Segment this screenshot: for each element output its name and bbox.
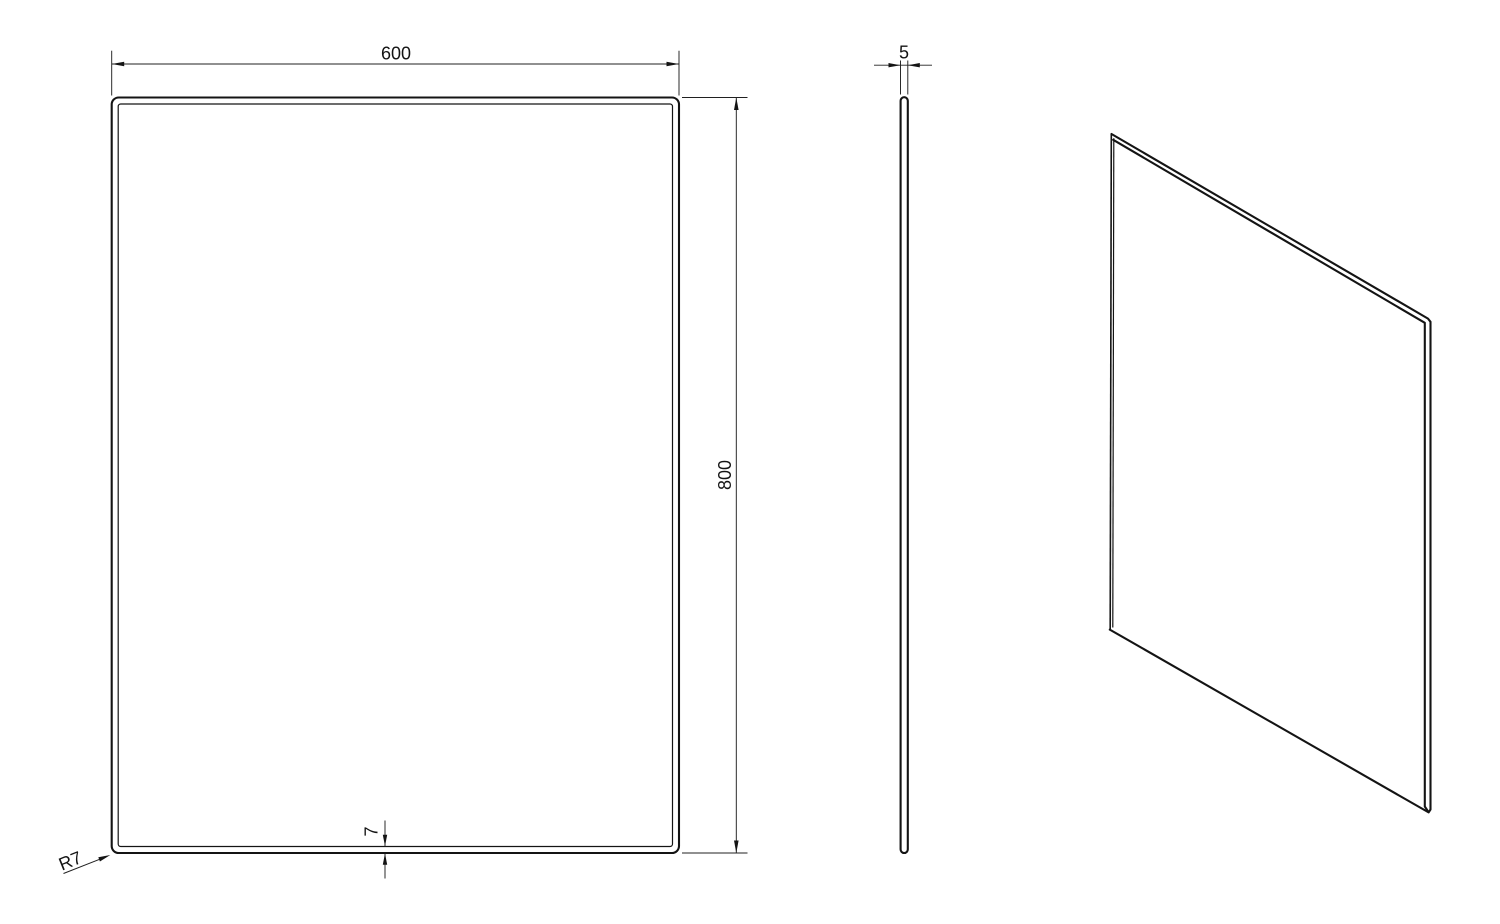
iso-outer-silhouette	[1110, 134, 1431, 812]
dimension-height: 800	[682, 98, 748, 854]
radius-callout: R7	[56, 847, 110, 874]
arrowhead-down	[383, 835, 387, 847]
iso-left-edge	[1110, 134, 1111, 629]
side-profile-edge	[901, 97, 908, 853]
front-bevel-edge	[118, 104, 672, 847]
arrowhead-bottom	[734, 841, 739, 854]
dimension-thickness-label: 5	[899, 43, 909, 63]
iso-left-bevel-edge	[1113, 138, 1114, 627]
arrowhead-left	[112, 62, 125, 67]
dimension-bevel: 7	[362, 821, 388, 879]
drawing-sheet: 600 800 7 R7	[0, 0, 1500, 924]
front-outer-edge	[112, 98, 679, 854]
dimension-width-label: 600	[381, 44, 411, 64]
isometric-view	[1110, 134, 1431, 812]
leader-arrowhead	[98, 855, 110, 862]
technical-drawing: 600 800 7 R7	[0, 0, 1500, 924]
radius-label: R7	[56, 847, 85, 874]
arrowhead-right	[908, 63, 920, 67]
arrowhead-left	[889, 63, 901, 67]
iso-inner-thickness-edge	[1113, 140, 1428, 812]
side-view	[901, 97, 908, 853]
front-view	[112, 98, 679, 854]
dimension-width: 600	[112, 44, 679, 96]
dimension-height-label: 800	[715, 460, 735, 490]
dimension-bevel-label: 7	[362, 826, 382, 836]
dimension-thickness: 5	[874, 43, 932, 95]
arrowhead-top	[734, 98, 739, 111]
arrowhead-up	[383, 853, 387, 865]
arrowhead-right	[667, 62, 680, 67]
